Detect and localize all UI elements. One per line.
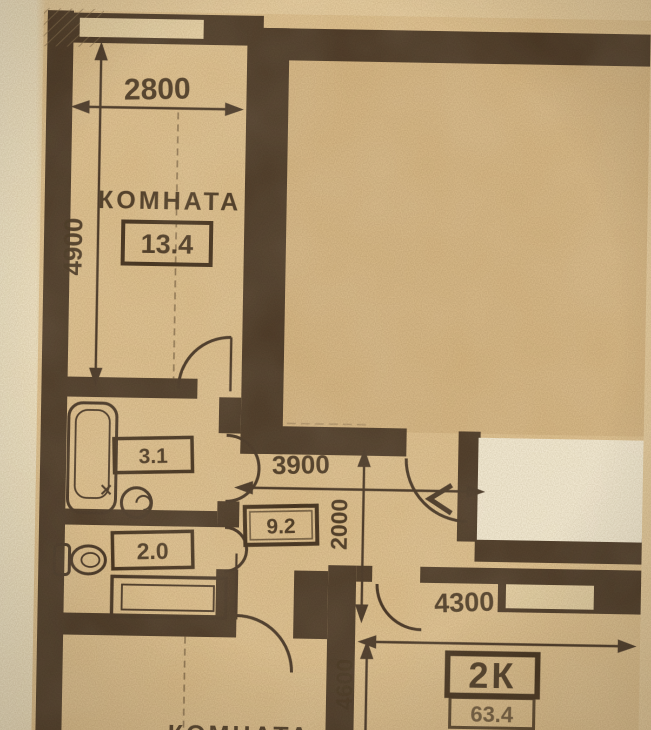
floor-plan-scan: 2800 4900 КОМНАТА 13.4 3.1 2.0 3900 9.2 …: [0, 0, 651, 730]
floor-plan: 2800 4900 КОМНАТА 13.4 3.1 2.0 3900 9.2 …: [0, 0, 651, 730]
vignette-overlay: [0, 0, 651, 730]
